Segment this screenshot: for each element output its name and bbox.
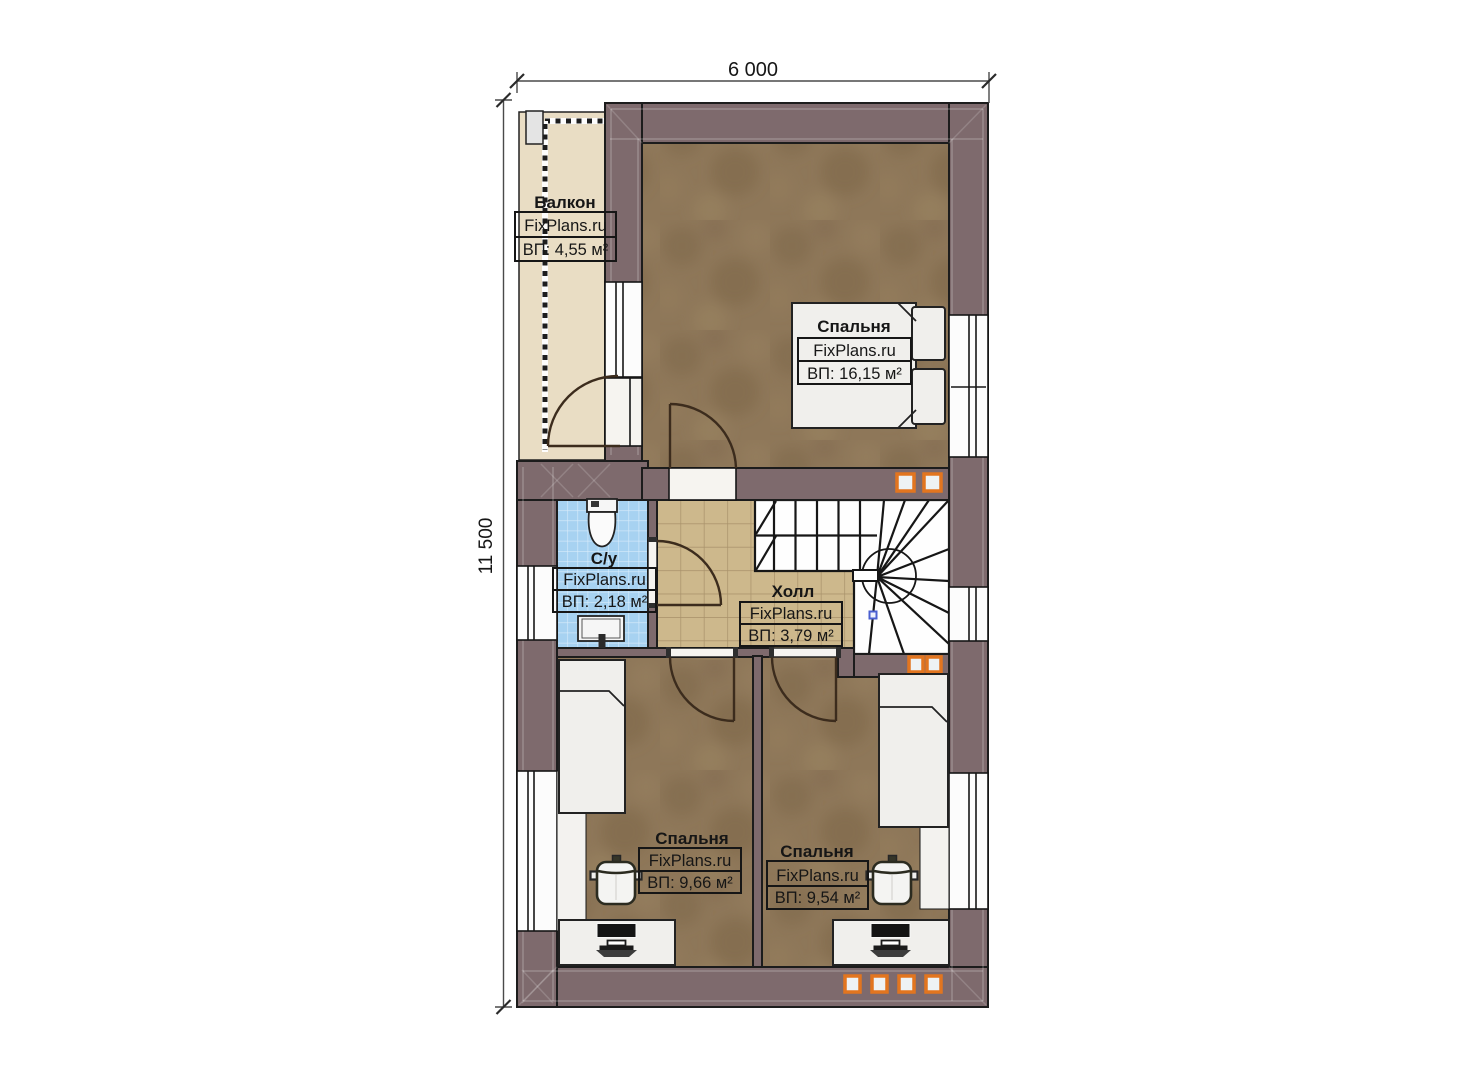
svg-text:ВП: 4,55 м²: ВП: 4,55 м² bbox=[523, 241, 609, 259]
svg-text:6 000: 6 000 bbox=[728, 59, 778, 81]
svg-text:ВП: 9,54 м²: ВП: 9,54 м² bbox=[775, 889, 861, 907]
svg-text:FixPlans.ru: FixPlans.ru bbox=[776, 867, 859, 885]
svg-text:11 500: 11 500 bbox=[476, 518, 497, 575]
svg-text:FixPlans.ru: FixPlans.ru bbox=[524, 217, 607, 235]
svg-text:ВП: 16,15 м²: ВП: 16,15 м² bbox=[807, 365, 902, 383]
svg-text:Спальня: Спальня bbox=[780, 842, 853, 861]
svg-text:Балкон: Балкон bbox=[534, 193, 595, 212]
svg-text:Спальня: Спальня bbox=[655, 829, 728, 848]
svg-text:FixPlans.ru: FixPlans.ru bbox=[563, 571, 646, 589]
svg-text:Холл: Холл bbox=[772, 582, 815, 601]
svg-text:Спальня: Спальня bbox=[817, 317, 890, 336]
svg-text:С/у: С/у bbox=[591, 549, 618, 568]
svg-text:FixPlans.ru: FixPlans.ru bbox=[649, 852, 732, 870]
svg-text:FixPlans.ru: FixPlans.ru bbox=[750, 605, 833, 623]
svg-text:ВП: 9,66 м²: ВП: 9,66 м² bbox=[647, 874, 733, 892]
svg-text:FixPlans.ru: FixPlans.ru bbox=[813, 342, 896, 360]
svg-text:ВП: 2,18 м²: ВП: 2,18 м² bbox=[562, 593, 648, 611]
svg-text:ВП: 3,79 м²: ВП: 3,79 м² bbox=[748, 627, 834, 645]
